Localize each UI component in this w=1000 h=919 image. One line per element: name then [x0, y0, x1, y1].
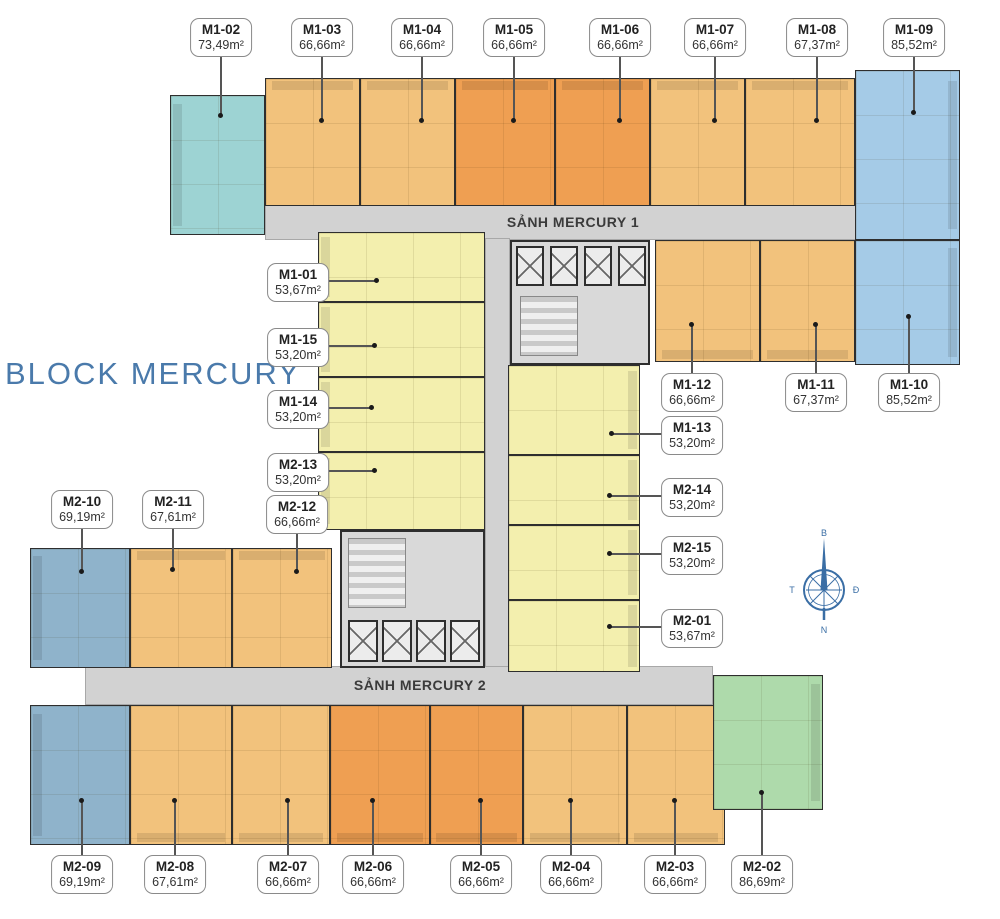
unit-label-m2-14: M2-14 53,20m²	[661, 478, 723, 517]
unit-code: M2-11	[150, 494, 196, 510]
elevator-icon	[348, 620, 378, 662]
unit-label-m2-13: M2-13 53,20m²	[267, 453, 329, 492]
elevator-icon	[550, 246, 578, 286]
unit-m1-08	[745, 78, 855, 206]
unit-m2-01	[508, 600, 640, 672]
unit-m2-02	[713, 675, 823, 810]
unit-m1-13	[508, 365, 640, 455]
pointer-dot	[478, 798, 483, 803]
unit-m2-09	[30, 705, 130, 845]
unit-code: M1-14	[275, 394, 321, 410]
unit-label-m1-11: M1-11 67,37m²	[785, 373, 847, 412]
unit-m2-13	[318, 452, 485, 530]
unit-area: 66,66m²	[669, 393, 715, 408]
pointer-dot	[712, 118, 717, 123]
connector-m1-15	[326, 345, 374, 347]
unit-code: M2-07	[265, 859, 311, 875]
connector-m2-07	[287, 802, 289, 855]
pointer-dot	[814, 118, 819, 123]
unit-code: M1-10	[886, 377, 932, 393]
compass-west-label: T	[789, 585, 795, 595]
unit-area: 53,20m²	[275, 348, 321, 363]
elevator-icon	[416, 620, 446, 662]
unit-code: M2-04	[548, 859, 594, 875]
connector-m1-14	[326, 407, 371, 409]
unit-code: M2-08	[152, 859, 198, 875]
compass-icon: B Đ N T	[786, 528, 862, 636]
connector-m2-06	[372, 802, 374, 855]
unit-m1-09	[855, 70, 960, 240]
pointer-dot	[370, 798, 375, 803]
unit-area: 66,66m²	[350, 875, 396, 890]
unit-m1-15	[318, 302, 485, 377]
pointer-dot	[319, 118, 324, 123]
unit-label-m1-15: M1-15 53,20m²	[267, 328, 329, 367]
unit-code: M2-15	[669, 540, 715, 556]
vertical-corridor	[485, 238, 510, 670]
unit-m1-01	[318, 232, 485, 302]
pointer-dot	[607, 624, 612, 629]
unit-area: 73,49m²	[198, 38, 244, 53]
pointer-dot	[906, 314, 911, 319]
connector-m2-10	[81, 526, 83, 571]
connector-m1-05	[513, 56, 515, 120]
unit-label-m1-10: M1-10 85,52m²	[878, 373, 940, 412]
unit-area: 66,66m²	[491, 38, 537, 53]
unit-m2-15	[508, 525, 640, 600]
unit-m2-05	[430, 705, 523, 845]
unit-label-m1-08: M1-08 67,37m²	[786, 18, 848, 57]
unit-area: 53,20m²	[669, 436, 715, 451]
unit-label-m2-08: M2-08 67,61m²	[144, 855, 206, 894]
unit-code: M2-10	[59, 494, 105, 510]
elevator-icon	[382, 620, 412, 662]
pointer-dot	[759, 790, 764, 795]
pointer-dot	[218, 113, 223, 118]
pointer-dot	[911, 110, 916, 115]
unit-label-m1-12: M1-12 66,66m²	[661, 373, 723, 412]
unit-label-m1-05: M1-05 66,66m²	[483, 18, 545, 57]
connector-m1-12	[691, 326, 693, 373]
connector-m2-15	[610, 553, 664, 555]
unit-m1-14	[318, 377, 485, 452]
unit-m2-06	[330, 705, 430, 845]
unit-code: M1-07	[692, 22, 738, 38]
unit-area: 66,66m²	[458, 875, 504, 890]
unit-label-m2-07: M2-07 66,66m²	[257, 855, 319, 894]
stairs-icon	[520, 296, 578, 356]
hall-1-label: SẢNH MERCURY 1	[507, 214, 639, 230]
pointer-dot	[372, 468, 377, 473]
connector-m1-09	[913, 56, 915, 112]
unit-label-m2-11: M2-11 67,61m²	[142, 490, 204, 529]
unit-area: 66,66m²	[274, 515, 320, 530]
unit-area: 66,66m²	[299, 38, 345, 53]
unit-label-m2-05: M2-05 66,66m²	[450, 855, 512, 894]
unit-label-m2-02: M2-02 86,69m²	[731, 855, 793, 894]
pointer-dot	[369, 405, 374, 410]
connector-m1-04	[421, 56, 423, 120]
pointer-dot	[285, 798, 290, 803]
unit-area: 53,20m²	[275, 473, 321, 488]
unit-area: 86,69m²	[739, 875, 785, 890]
compass-south-label: N	[821, 625, 828, 635]
unit-area: 66,66m²	[399, 38, 445, 53]
unit-label-m1-09: M1-09 85,52m²	[883, 18, 945, 57]
unit-area: 53,20m²	[669, 556, 715, 571]
unit-m1-11	[760, 240, 855, 362]
unit-label-m1-13: M1-13 53,20m²	[661, 416, 723, 455]
connector-m1-03	[321, 56, 323, 120]
pointer-dot	[689, 322, 694, 327]
unit-code: M2-12	[274, 499, 320, 515]
unit-label-m1-03: M1-03 66,66m²	[291, 18, 353, 57]
unit-m2-07	[232, 705, 330, 845]
unit-code: M1-01	[275, 267, 321, 283]
connector-m2-03	[674, 802, 676, 855]
unit-m2-14	[508, 455, 640, 525]
unit-code: M1-02	[198, 22, 244, 38]
unit-code: M2-02	[739, 859, 785, 875]
unit-label-m1-04: M1-04 66,66m²	[391, 18, 453, 57]
stairs-icon	[348, 538, 406, 608]
connector-m1-08	[816, 56, 818, 120]
unit-label-m1-07: M1-07 66,66m²	[684, 18, 746, 57]
pointer-dot	[170, 567, 175, 572]
unit-m2-04	[523, 705, 627, 845]
unit-code: M1-13	[669, 420, 715, 436]
connector-m1-06	[619, 56, 621, 120]
unit-label-m2-06: M2-06 66,66m²	[342, 855, 404, 894]
unit-area: 85,52m²	[891, 38, 937, 53]
unit-code: M1-06	[597, 22, 643, 38]
pointer-dot	[172, 798, 177, 803]
pointer-dot	[568, 798, 573, 803]
pointer-dot	[419, 118, 424, 123]
unit-label-m2-12: M2-12 66,66m²	[266, 495, 328, 534]
unit-code: M2-03	[652, 859, 698, 875]
connector-m2-05	[480, 802, 482, 855]
unit-label-m2-09: M2-09 69,19m²	[51, 855, 113, 894]
unit-code: M1-15	[275, 332, 321, 348]
unit-label-m1-02: M1-02 73,49m²	[190, 18, 252, 57]
compass-east-label: Đ	[853, 585, 860, 595]
unit-m1-05	[455, 78, 555, 206]
connector-m2-01	[610, 626, 664, 628]
unit-area: 69,19m²	[59, 510, 105, 525]
unit-area: 67,37m²	[793, 393, 839, 408]
unit-code: M2-14	[669, 482, 715, 498]
pointer-dot	[813, 322, 818, 327]
pointer-dot	[609, 431, 614, 436]
unit-area: 53,20m²	[669, 498, 715, 513]
unit-m2-10	[30, 548, 130, 668]
connector-m1-10	[908, 318, 910, 373]
unit-code: M1-09	[891, 22, 937, 38]
unit-m2-03	[627, 705, 725, 845]
unit-area: 66,66m²	[692, 38, 738, 53]
unit-m2-12	[232, 548, 332, 668]
unit-code: M1-03	[299, 22, 345, 38]
connector-m1-13	[612, 433, 664, 435]
pointer-dot	[607, 493, 612, 498]
unit-area: 66,66m²	[548, 875, 594, 890]
unit-code: M2-09	[59, 859, 105, 875]
elevator-icon	[516, 246, 544, 286]
unit-label-m2-04: M2-04 66,66m²	[540, 855, 602, 894]
unit-code: M1-11	[793, 377, 839, 393]
unit-m1-04	[360, 78, 455, 206]
pointer-dot	[672, 798, 677, 803]
unit-m1-06	[555, 78, 650, 206]
connector-m2-13	[326, 470, 374, 472]
pointer-dot	[79, 569, 84, 574]
unit-m2-11	[130, 548, 232, 668]
connector-m2-14	[610, 495, 664, 497]
unit-area: 53,20m²	[275, 410, 321, 425]
connector-m2-08	[174, 802, 176, 855]
unit-code: M1-12	[669, 377, 715, 393]
unit-code: M1-04	[399, 22, 445, 38]
unit-area: 69,19m²	[59, 875, 105, 890]
pointer-dot	[511, 118, 516, 123]
elevator-icon	[584, 246, 612, 286]
unit-m1-03	[265, 78, 360, 206]
unit-label-m1-01: M1-01 53,67m²	[267, 263, 329, 302]
unit-area: 67,37m²	[794, 38, 840, 53]
connector-m2-09	[81, 802, 83, 855]
unit-m2-08	[130, 705, 232, 845]
unit-label-m2-15: M2-15 53,20m²	[661, 536, 723, 575]
unit-code: M2-13	[275, 457, 321, 473]
pointer-dot	[79, 798, 84, 803]
connector-m2-04	[570, 802, 572, 855]
block-title: BLOCK MERCURY	[5, 356, 301, 392]
connector-m2-11	[172, 526, 174, 569]
pointer-dot	[294, 569, 299, 574]
unit-area: 85,52m²	[886, 393, 932, 408]
pointer-dot	[607, 551, 612, 556]
unit-area: 67,61m²	[150, 510, 196, 525]
connector-m1-11	[815, 326, 817, 373]
unit-code: M1-08	[794, 22, 840, 38]
elevator-icon	[618, 246, 646, 286]
connector-m1-01	[326, 280, 376, 282]
unit-code: M1-05	[491, 22, 537, 38]
unit-area: 66,66m²	[265, 875, 311, 890]
hall-2-label: SẢNH MERCURY 2	[354, 677, 486, 693]
unit-m1-12	[655, 240, 760, 362]
unit-area: 53,67m²	[275, 283, 321, 298]
pointer-dot	[374, 278, 379, 283]
unit-area: 66,66m²	[597, 38, 643, 53]
connector-m1-02	[220, 56, 222, 115]
unit-m1-07	[650, 78, 745, 206]
connector-m2-12	[296, 531, 298, 571]
unit-label-m2-01: M2-01 53,67m²	[661, 609, 723, 648]
unit-label-m2-10: M2-10 69,19m²	[51, 490, 113, 529]
unit-label-m1-14: M1-14 53,20m²	[267, 390, 329, 429]
elevator-icon	[450, 620, 480, 662]
unit-code: M2-05	[458, 859, 504, 875]
unit-label-m1-06: M1-06 66,66m²	[589, 18, 651, 57]
unit-code: M2-06	[350, 859, 396, 875]
floor-plan: SẢNH MERCURY 1 SẢNH MERCURY 2 M1	[0, 0, 1000, 919]
unit-code: M2-01	[669, 613, 715, 629]
unit-area: 66,66m²	[652, 875, 698, 890]
unit-label-m2-03: M2-03 66,66m²	[644, 855, 706, 894]
unit-area: 53,67m²	[669, 629, 715, 644]
connector-m2-02	[761, 794, 763, 855]
unit-area: 67,61m²	[152, 875, 198, 890]
pointer-dot	[372, 343, 377, 348]
connector-m1-07	[714, 56, 716, 120]
pointer-dot	[617, 118, 622, 123]
compass-north-label: B	[821, 528, 827, 538]
